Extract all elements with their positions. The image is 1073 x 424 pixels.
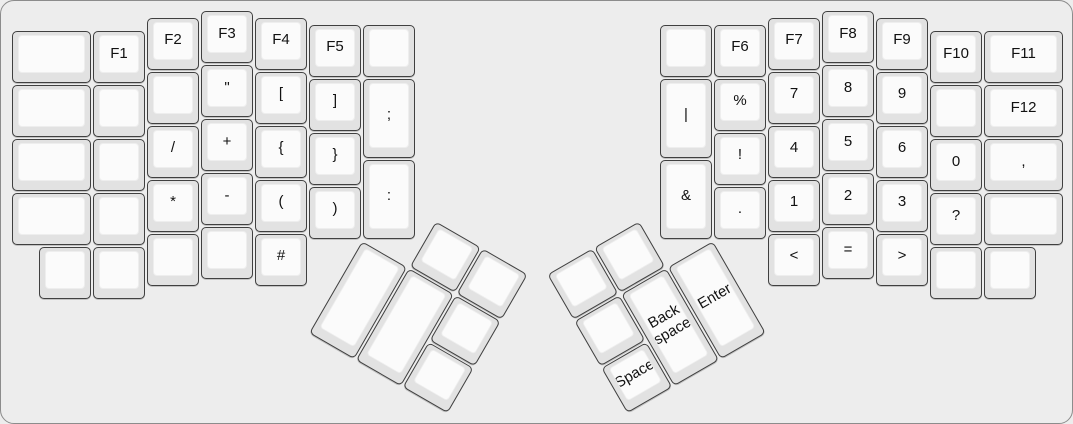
keyboard-layout-canvas: F1F2/*F3"+-F4[{(F5]});:#|&F6%!.F7741F885…: [0, 0, 1073, 424]
keycap-top: [601, 228, 655, 281]
keycap-label: Space: [612, 357, 657, 393]
keycap-label: Back space: [643, 300, 694, 349]
keycap-top: [554, 255, 608, 308]
keycap-label: Enter: [695, 281, 734, 313]
